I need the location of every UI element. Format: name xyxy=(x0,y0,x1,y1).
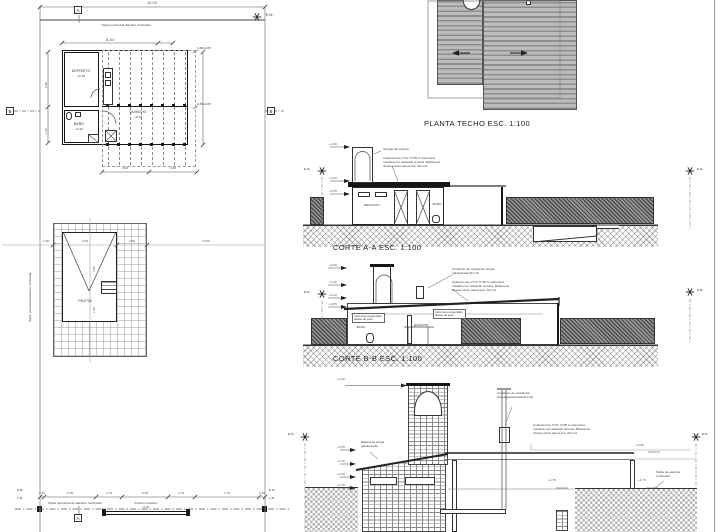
gate-dim: 3.00 xyxy=(143,506,149,510)
gate-fence-note: Tejido perimetral de alambre romboidal xyxy=(48,502,101,506)
tank-note: Tanque de reserva xyxy=(383,148,409,152)
fence-post xyxy=(262,506,267,512)
room-label-quincho-bb: QUINCHO xyxy=(414,324,429,328)
room-label-bano-aa: BAÑO xyxy=(433,203,442,207)
dim-plan-width: 8.40 xyxy=(106,38,114,43)
section-marker-b-left: B xyxy=(6,107,14,115)
room-label-quincho: QUINCHO xyxy=(130,110,147,114)
section-marker-b-right: B xyxy=(267,107,275,115)
gate-stripe xyxy=(106,512,186,513)
room-label-bano: BAÑO xyxy=(74,122,84,126)
column xyxy=(117,104,120,107)
gate-end xyxy=(102,509,106,516)
column xyxy=(128,143,131,146)
dim-plan-left-bottom: 1.60 xyxy=(45,128,49,134)
vent-note-sd: Conducto de ventilación chapa galvanizad… xyxy=(497,392,537,400)
em-label-bb-right: E.M. xyxy=(697,289,703,293)
boundary-wall xyxy=(311,318,347,345)
dim-plan-bottom-right: 3.08 xyxy=(170,167,176,171)
chimney xyxy=(373,266,391,304)
level-bano: +0.10 xyxy=(75,128,83,132)
axis-dim: 2.35 xyxy=(129,240,135,244)
chimney-cap xyxy=(370,264,394,267)
level-slab: +2.85 xyxy=(636,444,644,448)
gate-seg-dim: 7.70 xyxy=(224,492,230,496)
vent-box xyxy=(499,427,510,443)
fence-post xyxy=(37,506,42,512)
bench-slab xyxy=(440,509,506,514)
em-label-aa-right: E.M. xyxy=(697,168,703,172)
axis-dim: 10.00 xyxy=(202,240,210,244)
window xyxy=(370,477,397,485)
level-label: +3.20 xyxy=(329,177,337,181)
em-label-bb-left: E.M. xyxy=(304,291,310,295)
pergola-joist xyxy=(163,52,164,165)
column xyxy=(150,143,153,146)
window xyxy=(405,477,435,485)
chimney-cap xyxy=(406,383,450,386)
ceiling-note-left: Cielo raso suspendido placas de yeso xyxy=(352,313,385,323)
roof-note-sd: Cubierta cha. H°G° N°25 s/ estructura me… xyxy=(533,424,595,436)
quincho-beam xyxy=(102,106,188,107)
pool-label: PILETA xyxy=(78,299,92,304)
lm-label-gate-left: L.M. xyxy=(17,497,23,501)
pool-dim-length: 4.20 xyxy=(93,266,97,272)
pier xyxy=(556,510,568,531)
room-label-deposito-aa: DEPOSITO xyxy=(364,204,380,208)
pergola-joist xyxy=(185,52,186,165)
window-note-top: 1.80×2.05 xyxy=(197,47,211,51)
door xyxy=(416,190,430,225)
pergola-outline xyxy=(102,50,196,167)
level-label: +2.05 xyxy=(337,473,345,477)
fireplace xyxy=(105,130,117,142)
shower xyxy=(88,134,99,143)
bar-unit xyxy=(407,315,412,344)
level-label: +2.85 xyxy=(337,446,345,450)
toilet-elev xyxy=(366,333,374,343)
gate-seg-dim: 5.35 xyxy=(67,492,73,496)
right-wall xyxy=(557,303,559,345)
ceiling-note-right: Cielo raso suspendido placas de yeso xyxy=(433,309,466,319)
parrilla-wall xyxy=(461,318,521,344)
vent-note-bb: Conducto de ventilación chapa galvanizad… xyxy=(452,268,504,276)
roof-slope-right xyxy=(483,0,577,110)
vent-duct xyxy=(416,286,424,299)
fence-wall xyxy=(506,197,654,224)
toilet-elev xyxy=(432,215,440,223)
level-label: +4.60 xyxy=(329,143,337,147)
sink xyxy=(105,80,111,86)
pergola-joist xyxy=(130,52,131,165)
door xyxy=(394,190,408,225)
lm-label-gate-right: L.M. xyxy=(269,497,275,501)
pool-steps xyxy=(101,281,117,294)
level-ground-right: +1.75 xyxy=(638,479,646,483)
column xyxy=(183,104,186,107)
column xyxy=(161,143,164,146)
pergola-joist xyxy=(174,52,175,165)
roof-note-bb: Cubierta cha. H°G° N°25 s/ estructura me… xyxy=(452,281,514,293)
fence-note-left: Tejido perimetral alambre romboidal xyxy=(29,273,33,322)
boundary-wall xyxy=(310,197,324,225)
level-label: +2.85 xyxy=(329,303,337,307)
level-label: +3.00 xyxy=(329,294,337,298)
drawing-sheet: Cielo raso suspendido placas de yeso Cie… xyxy=(0,0,720,532)
dim-plan-bottom-left: 3.08 xyxy=(122,167,128,171)
em-label-sd-right: E.M. xyxy=(702,433,708,437)
ground-right xyxy=(575,488,697,532)
level-top: +4.60 xyxy=(337,378,345,382)
level-deposito: +0.10 xyxy=(77,75,85,79)
washbasin xyxy=(75,112,81,117)
column xyxy=(139,143,142,146)
sink xyxy=(105,72,111,78)
gate-seg-dim: 0.15 xyxy=(259,492,265,496)
em-label-gate-left: E.M. xyxy=(17,489,23,493)
level-label: +4.60 xyxy=(329,264,337,268)
axis-dim: 1.85 xyxy=(43,240,49,244)
column xyxy=(128,104,131,107)
level-label: +2.85 xyxy=(329,190,337,194)
gate-seg-dim: 0.15 xyxy=(39,492,45,496)
dim-site-width: 16.00 xyxy=(147,1,157,6)
gate-seg-dim: 2.70 xyxy=(178,492,184,496)
roof-note-aa: Cubierta cha. H°G° N°25 s/ estructura me… xyxy=(383,157,445,169)
fence-wall xyxy=(560,318,655,344)
pool-cut xyxy=(533,226,597,242)
vent-outlet xyxy=(526,0,531,5)
gate-seg-dim: 2.70 xyxy=(106,492,112,496)
em-label-aa-left: E.M. xyxy=(304,168,310,172)
pool-dim-width: 2.60 xyxy=(93,307,97,313)
fence-note-sd: Tejido de alambre romboidal xyxy=(656,471,686,479)
pergola-joist xyxy=(119,52,120,165)
fence-note-top: Tejido perimetral alambre romboidal xyxy=(101,24,150,28)
level-label: +3.40 xyxy=(329,281,337,285)
section-marker-a-top: A xyxy=(74,6,82,14)
gate-end xyxy=(186,509,190,516)
brick-wall xyxy=(362,454,446,532)
pergola-joist xyxy=(141,52,142,165)
level-quincho: +0.10 xyxy=(134,116,142,120)
em-label-gate-right: E.M. xyxy=(269,489,275,493)
section-marker-a-bottom: A xyxy=(74,514,82,522)
level-label: +2.40 xyxy=(337,460,345,464)
tank-tower xyxy=(352,147,373,183)
dim-plan-left-top: 2.95 xyxy=(45,82,49,88)
em-label-top-right: E.M. xyxy=(266,13,273,17)
gate-seg-dim: 5.48 xyxy=(142,492,148,496)
column xyxy=(139,104,142,107)
corte-aa-title: CORTE A-A ESC. 1:100 xyxy=(333,243,421,252)
room-label-bano-bb: BAÑO xyxy=(357,326,366,330)
roof-plan-title: PLANTA TECHO ESC. 1:100 xyxy=(424,119,530,128)
column xyxy=(183,143,186,146)
level-ground-left: +1.75 xyxy=(548,479,556,483)
pergola-column xyxy=(501,187,503,225)
level-label: +1.75 xyxy=(337,484,345,488)
room-label-deposito: DEPOSITO xyxy=(72,69,91,73)
window xyxy=(375,192,387,197)
pool-ledge xyxy=(597,225,619,229)
pergola-joist xyxy=(152,52,153,165)
column xyxy=(172,143,175,146)
column xyxy=(161,104,164,107)
em-label-sd-left: E.M. xyxy=(288,433,294,437)
window-note-bottom: 0.80×2.05 xyxy=(197,103,211,107)
pool xyxy=(62,232,117,322)
deposito-room xyxy=(64,52,99,107)
flashing-note: Babeta de chapa galvanizada xyxy=(361,441,391,449)
toilet xyxy=(66,112,72,120)
column xyxy=(150,104,153,107)
roof-slope-left xyxy=(437,0,483,85)
axis-dim: 4.00 xyxy=(82,240,88,244)
column xyxy=(172,104,175,107)
interior-wall xyxy=(452,460,457,532)
corte-bb-title: CORTE B-B ESC. 1:100 xyxy=(333,354,422,363)
window xyxy=(358,192,370,197)
ground-left xyxy=(305,487,358,532)
column xyxy=(117,143,120,146)
column xyxy=(106,143,109,146)
